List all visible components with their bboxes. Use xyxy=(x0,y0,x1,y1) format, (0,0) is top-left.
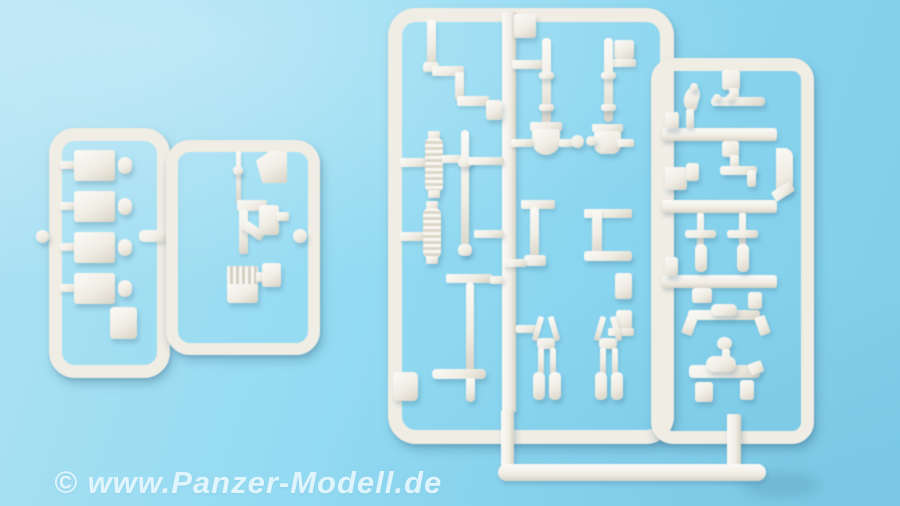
bottom-runner-bar xyxy=(498,464,766,481)
periscope-cross xyxy=(727,230,758,238)
tie-rod-bump xyxy=(726,94,734,101)
sprue-d-rung-3 xyxy=(662,275,777,288)
pad-part xyxy=(740,380,754,400)
step-box-part xyxy=(665,167,687,190)
pad-part xyxy=(748,292,762,309)
hook-tip xyxy=(690,83,698,91)
axle-center-hump xyxy=(711,304,737,316)
sprue-d-rung-1 xyxy=(662,128,777,141)
pad-part xyxy=(665,112,679,129)
pad-part xyxy=(692,288,712,303)
hook-stem xyxy=(686,109,694,128)
t-fitting-flare xyxy=(747,170,756,187)
periscope-cylinder xyxy=(695,244,707,272)
exhaust-hump xyxy=(706,356,736,372)
tie-rod-bump xyxy=(713,94,721,101)
pad-part xyxy=(665,257,678,276)
pad-part xyxy=(695,382,713,402)
sprues-layer xyxy=(0,0,900,506)
sprue-d-rung-2 xyxy=(662,200,777,213)
pad-part xyxy=(722,70,740,90)
watermark-text: © www.Panzer-Modell.de xyxy=(54,465,442,501)
sprue-d xyxy=(0,0,900,506)
periscope-cross xyxy=(685,230,716,238)
step-box-head xyxy=(686,163,699,181)
photo-model-sprues: © www.Panzer-Modell.de xyxy=(0,0,900,506)
periscope-cylinder xyxy=(737,244,749,272)
